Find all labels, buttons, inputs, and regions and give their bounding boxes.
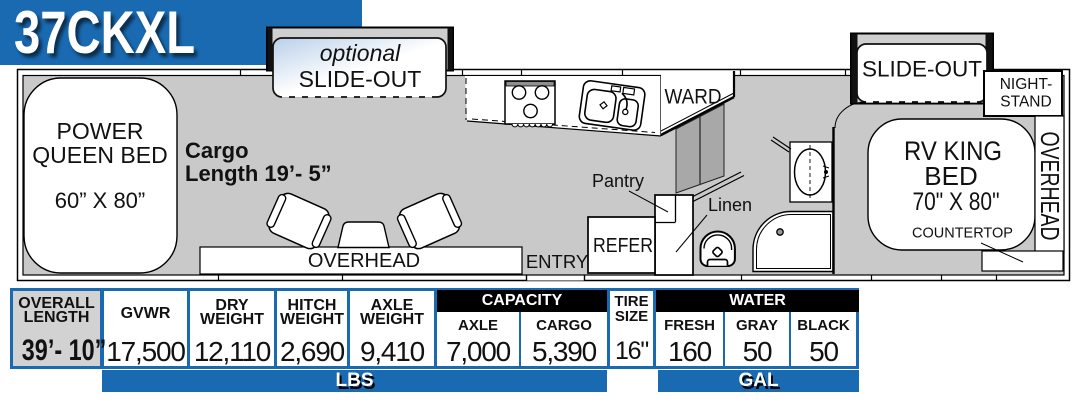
svg-text:SLIDE-OUT: SLIDE-OUT — [299, 66, 422, 92]
svg-text:60” X 80”: 60” X 80” — [55, 188, 146, 213]
svg-text:REFER: REFER — [593, 235, 653, 257]
svg-text:SLIDE-OUT: SLIDE-OUT — [862, 57, 982, 82]
svg-text:Pantry: Pantry — [592, 171, 644, 191]
svg-text:ENTRY: ENTRY — [526, 251, 588, 272]
svg-text:optional: optional — [320, 40, 401, 66]
svg-text:QUEEN BED: QUEEN BED — [32, 142, 167, 168]
svg-text:WARD: WARD — [665, 86, 722, 109]
svg-text:OVERHEAD: OVERHEAD — [1035, 132, 1065, 241]
svg-text:POWER: POWER — [57, 118, 144, 144]
svg-text:Cargo: Cargo — [185, 138, 249, 163]
svg-text:Length 19’- 5”: Length 19’- 5” — [185, 161, 332, 186]
svg-text:Linen: Linen — [708, 195, 752, 215]
svg-text:70" X 80": 70" X 80" — [913, 188, 1000, 216]
svg-text:COUNTERTOP: COUNTERTOP — [912, 226, 1013, 242]
svg-text:OVERHEAD: OVERHEAD — [308, 250, 420, 272]
svg-text:STAND: STAND — [1000, 94, 1051, 111]
svg-text:BED: BED — [924, 161, 977, 191]
svg-text:NIGHT-: NIGHT- — [1000, 76, 1053, 93]
